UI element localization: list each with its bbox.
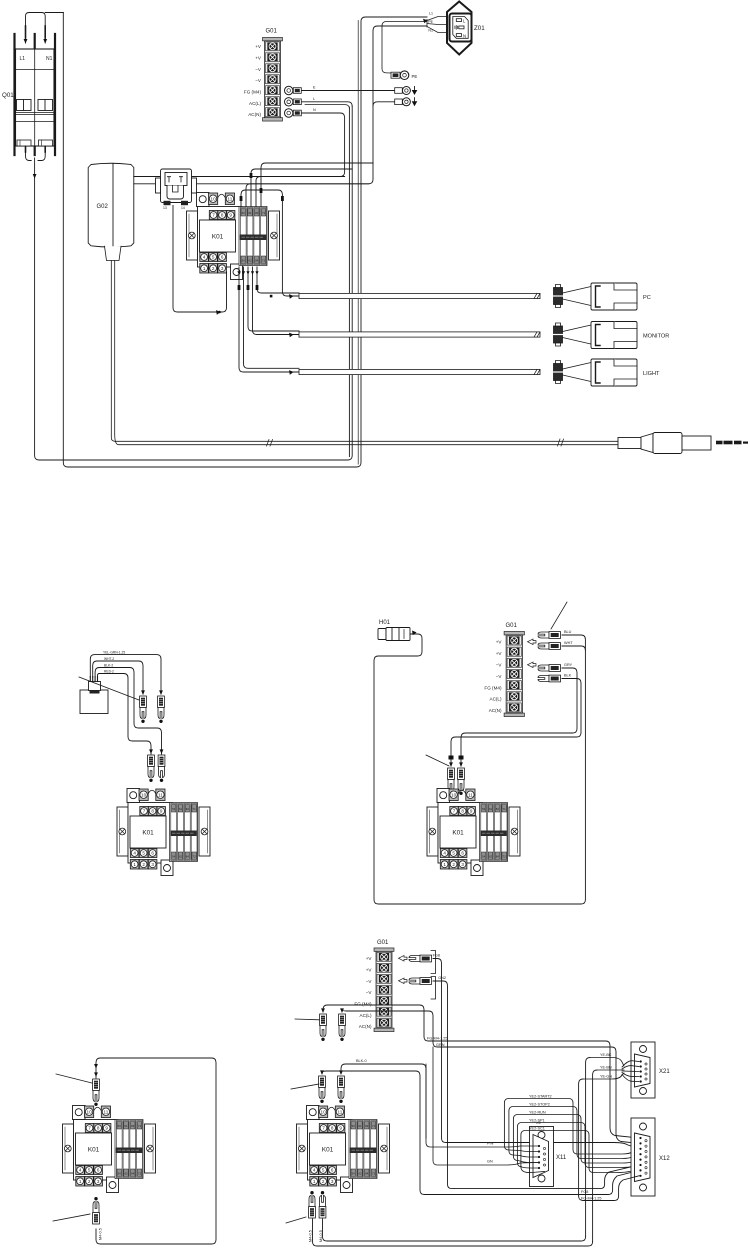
svg-text:H01: H01 [379, 620, 391, 626]
svg-text:YE2-SP1: YE2-SP1 [529, 1119, 545, 1123]
svg-text:RED-2: RED-2 [104, 669, 114, 673]
svg-text:BLK: BLK [564, 674, 572, 678]
svg-text:FG8: FG8 [581, 1190, 588, 1194]
svg-text:YEL-GRN-1.25: YEL-GRN-1.25 [103, 650, 125, 654]
svg-text:WHT-2: WHT-2 [104, 657, 114, 661]
svg-text:G01: G01 [506, 623, 518, 629]
svg-text:Z01: Z01 [474, 25, 485, 32]
svg-text:YE2-STOP2: YE2-STOP2 [529, 1103, 550, 1107]
svg-text:AC(N): AC(N) [489, 708, 502, 713]
svg-text:M4-0.5: M4-0.5 [99, 1228, 103, 1240]
svg-text:PE: PE [428, 20, 433, 24]
svg-text:−V: −V [496, 674, 503, 679]
svg-text:GRN: GRN [436, 1043, 445, 1047]
svg-text:YE-BN: YE-BN [600, 1066, 612, 1070]
svg-text:+V: +V [255, 56, 262, 61]
svg-text:G02: G02 [97, 204, 109, 210]
svg-text:13: 13 [163, 206, 167, 210]
svg-text:YE2-SC1: YE2-SC1 [529, 1127, 545, 1131]
svg-text:X21: X21 [659, 1069, 670, 1075]
svg-text:AC(L): AC(L) [490, 697, 502, 702]
svg-text:G01: G01 [377, 940, 389, 946]
svg-text:N: N [313, 108, 316, 112]
svg-text:YE2-START2: YE2-START2 [529, 1095, 552, 1099]
svg-text:MONITOR: MONITOR [643, 334, 669, 340]
svg-text:L1: L1 [20, 56, 26, 62]
svg-text:Q01: Q01 [2, 92, 14, 99]
svg-text:FG-M4-1.25: FG-M4-1.25 [581, 1196, 601, 1200]
svg-text:14: 14 [181, 206, 185, 210]
svg-text:M4-0.5: M4-0.5 [309, 1230, 313, 1242]
svg-text:AC(L): AC(L) [360, 1013, 372, 1018]
svg-text:GN2: GN2 [438, 976, 446, 980]
svg-text:AC(N): AC(N) [359, 1024, 372, 1029]
svg-text:−V: −V [255, 78, 262, 83]
svg-text:GN: GN [487, 1160, 493, 1164]
svg-text:LIGHT: LIGHT [643, 371, 660, 377]
svg-text:+V: +V [255, 44, 262, 49]
svg-text:L: L [313, 97, 315, 101]
svg-text:BLK-0: BLK-0 [356, 1059, 367, 1063]
svg-text:X12: X12 [659, 1156, 670, 1162]
svg-text:−V: −V [255, 67, 262, 72]
svg-text:G01: G01 [266, 29, 278, 35]
svg-text:+V: +V [366, 968, 373, 973]
svg-text:+V: +V [366, 956, 373, 961]
svg-text:FG (M4): FG (M4) [244, 90, 262, 95]
svg-text:AC(L): AC(L) [249, 101, 261, 106]
svg-text:L1: L1 [429, 12, 433, 16]
svg-text:N1: N1 [46, 56, 53, 62]
svg-text:N: N [463, 34, 466, 39]
svg-text:YE2-RUN: YE2-RUN [529, 1111, 546, 1115]
svg-text:YE-GN: YE-GN [600, 1075, 612, 1079]
svg-text:FG (M4): FG (M4) [354, 1002, 372, 1007]
svg-text:BLU: BLU [564, 630, 572, 634]
svg-text:FG-M4-1.25: FG-M4-1.25 [427, 1037, 447, 1041]
svg-text:N1: N1 [428, 29, 433, 33]
svg-text:WHT: WHT [564, 641, 573, 645]
svg-text:X11: X11 [556, 1155, 567, 1161]
svg-text:GRY: GRY [564, 663, 573, 667]
svg-text:−V: −V [496, 663, 503, 668]
svg-text:PE: PE [412, 74, 418, 79]
svg-text:BLK-2: BLK-2 [104, 663, 113, 667]
svg-text:+V: +V [496, 640, 503, 645]
svg-text:AC(N): AC(N) [248, 112, 261, 117]
svg-text:YE-BK: YE-BK [600, 1053, 612, 1057]
svg-text:PC: PC [643, 295, 651, 301]
svg-text:FG8: FG8 [433, 954, 440, 958]
svg-text:FG (M4): FG (M4) [484, 686, 502, 691]
svg-text:PIN: PIN [487, 1142, 494, 1146]
svg-text:+V: +V [496, 651, 503, 656]
svg-text:−V: −V [366, 979, 373, 984]
svg-text:−V: −V [366, 990, 373, 995]
